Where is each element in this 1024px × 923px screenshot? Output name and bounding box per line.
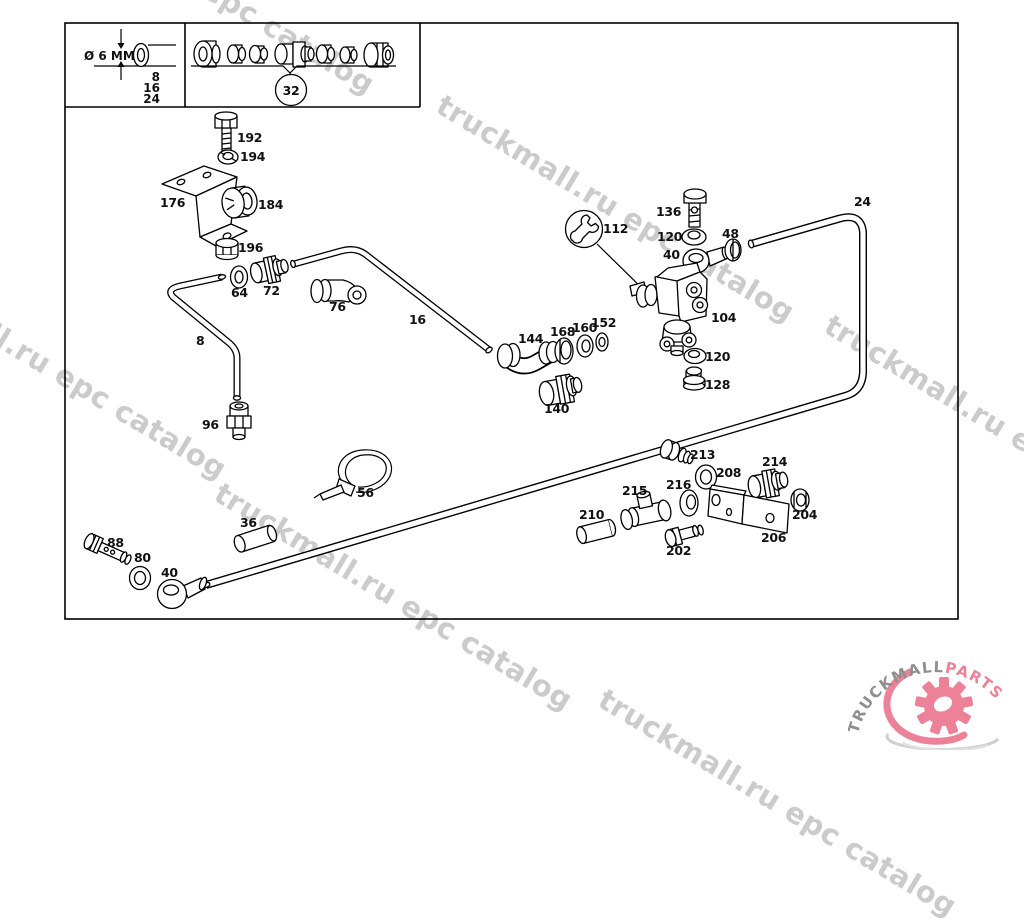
part-label-196: 196	[238, 240, 264, 255]
part-194-washer	[218, 150, 238, 164]
part-152-washer	[596, 333, 608, 351]
part-label-24: 24	[854, 194, 871, 209]
part-label-202: 202	[666, 543, 691, 558]
part-label-176: 176	[160, 195, 186, 210]
part-label-48: 48	[722, 226, 739, 241]
part-48-sleeve	[725, 239, 741, 261]
tube-16	[290, 250, 493, 354]
part-label-206: 206	[761, 530, 787, 545]
part-120-washer-upper	[682, 229, 706, 245]
part-40-banjo-lower	[158, 576, 209, 608]
part-128-plug	[684, 367, 706, 390]
part-56-cable-tie	[314, 450, 392, 500]
part-80-washer	[130, 567, 151, 590]
part-label-144: 144	[518, 331, 544, 346]
part-214-union	[746, 467, 790, 501]
part-216-grommet	[680, 490, 698, 516]
legend-fitting-set: 32	[191, 41, 396, 106]
part-136-bolt	[684, 189, 706, 227]
part-label-88: 88	[107, 535, 124, 550]
part-120-washer-lower	[684, 349, 706, 364]
part-label-204: 204	[792, 507, 818, 522]
part-label-36: 36	[240, 515, 257, 530]
diameter-label: Ø 6 MM	[84, 49, 135, 63]
part-label-40-upper: 40	[663, 247, 680, 262]
part-196-nut	[216, 239, 238, 260]
legend-tube-diameter: Ø 6 MM 8 16 24	[84, 29, 176, 106]
truckmall-parts-logo: TRUCKMALLPARTS	[848, 648, 1024, 750]
parts-diagram: Ø 6 MM 8 16 24 32	[0, 0, 1024, 750]
part-label-128: 128	[705, 377, 730, 392]
part-label-80: 80	[134, 550, 151, 565]
part-label-214: 214	[762, 454, 788, 469]
part-label-64: 64	[231, 285, 248, 300]
part-210-sleeve	[575, 519, 617, 545]
part-label-16: 16	[409, 312, 426, 327]
part-72-union	[248, 253, 291, 286]
part-160-washer	[577, 335, 593, 357]
part-label-140: 140	[544, 401, 570, 416]
part-96-fitting	[227, 402, 251, 440]
group-ref-number: 32	[283, 83, 300, 98]
part-label-40-lower: 40	[161, 565, 178, 580]
part-label-215: 215	[622, 483, 647, 498]
part-label-152: 152	[591, 315, 616, 330]
logo-gear-icon	[915, 677, 974, 735]
part-label-112: 112	[603, 221, 628, 236]
part-label-184: 184	[258, 197, 284, 212]
part-184-grommet	[220, 185, 259, 220]
part-label-213: 213	[690, 447, 715, 462]
tube-size-24: 24	[143, 92, 160, 106]
part-label-8: 8	[196, 333, 204, 348]
part-label-120-lower: 120	[705, 349, 731, 364]
part-label-56: 56	[357, 485, 374, 500]
part-label-96: 96	[202, 417, 219, 432]
part-label-72: 72	[263, 283, 280, 298]
part-label-208: 208	[716, 465, 741, 480]
part-label-120-upper: 120	[657, 229, 683, 244]
tube-cross-section	[134, 44, 149, 67]
part-label-76: 76	[329, 299, 346, 314]
part-192-bolt	[215, 112, 237, 152]
fitting-row	[194, 41, 394, 67]
part-label-216: 216	[666, 477, 692, 492]
part-label-192: 192	[237, 130, 262, 145]
part-label-210: 210	[579, 507, 605, 522]
part-label-136: 136	[656, 204, 682, 219]
part-168-nut	[555, 338, 573, 364]
part-104-valve	[630, 263, 708, 356]
part-label-194: 194	[240, 149, 266, 164]
part-label-104: 104	[711, 310, 737, 325]
